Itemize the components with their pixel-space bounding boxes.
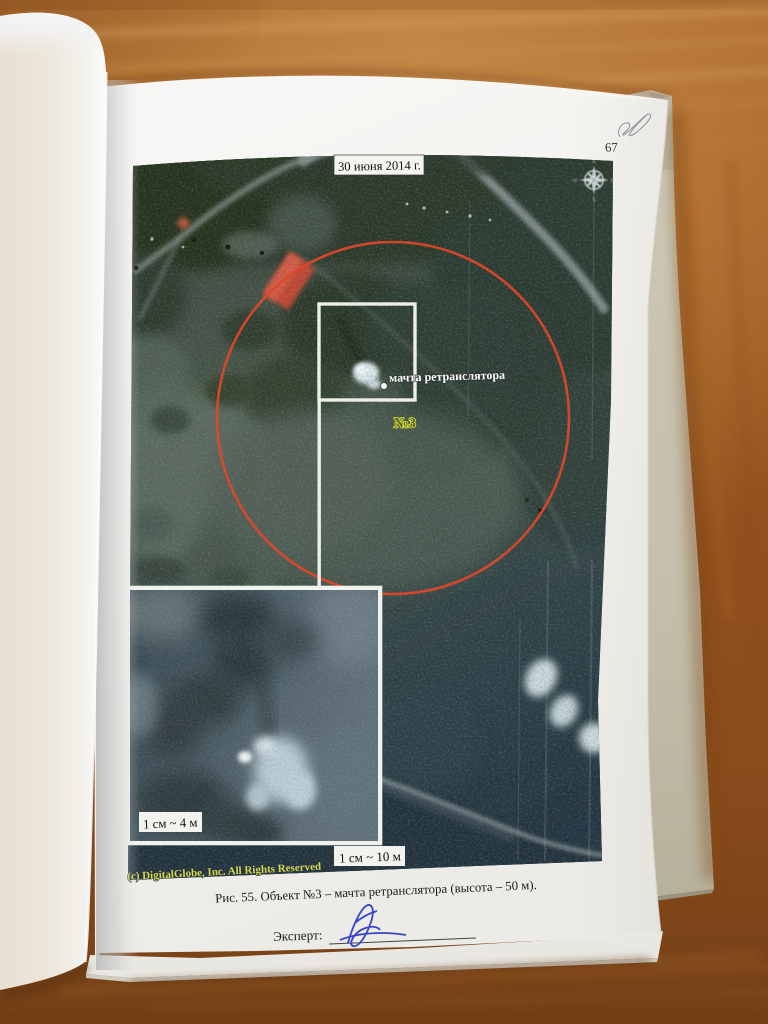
svg-text:№3: №3	[394, 416, 416, 432]
svg-text:1 см ~ 10 м: 1 см ~ 10 м	[339, 848, 401, 865]
svg-text:N: N	[592, 160, 596, 166]
svg-text:S: S	[592, 197, 595, 203]
svg-text:30 июня 2014 г.: 30 июня 2014 г.	[338, 158, 421, 173]
svg-text:E: E	[611, 178, 614, 184]
svg-text:67: 67	[605, 140, 619, 154]
svg-text:1 см ~ 4 м: 1 см ~ 4 м	[143, 816, 198, 832]
svg-text:W: W	[573, 178, 578, 184]
svg-text:Эксперт:: Эксперт:	[273, 927, 323, 944]
